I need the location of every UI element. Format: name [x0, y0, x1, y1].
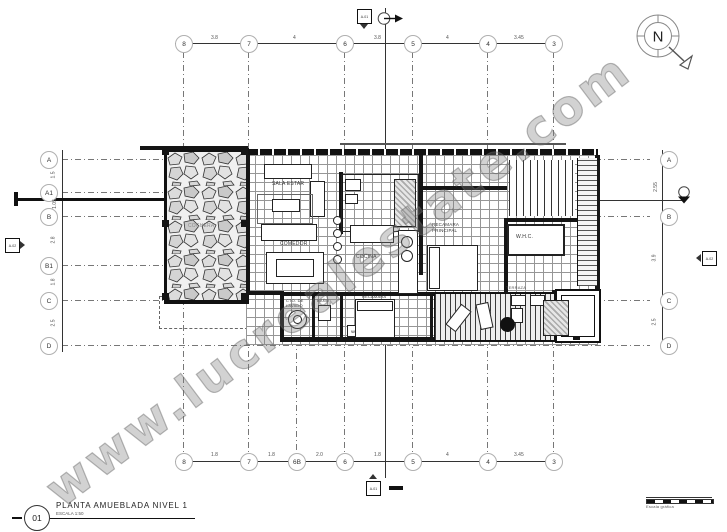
dimension-line-right [662, 150, 663, 352]
section-arrow-up-icon [369, 474, 377, 479]
room-label-sala: SALA ESTAR [272, 181, 304, 187]
cooktop-burner [401, 236, 413, 248]
grid-bubble-bottom-6: 6 [336, 453, 354, 471]
section-direction-arrow-icon [377, 10, 404, 27]
grid-line-row-d [62, 345, 650, 346]
grid-bubble-bottom-5: 5 [404, 453, 422, 471]
room-label-bano: BAÑO [317, 298, 329, 303]
staircase [509, 160, 575, 216]
room-label-comedor: COMEDOR [280, 241, 308, 247]
dim-bottom-2: 1.8 [268, 452, 275, 458]
wall-divider-1 [312, 296, 315, 337]
pool-step [573, 336, 580, 340]
dim-bottom-3: 2.0 [316, 452, 323, 458]
title-tick [12, 517, 22, 519]
wall-divider-3 [430, 296, 433, 337]
north-arrow-icon: N [626, 8, 698, 74]
grid-bubble-bottom-3: 3 [545, 453, 563, 471]
roof-overhang-line [340, 143, 566, 145]
dim-left-4: 1.8 [50, 279, 56, 286]
column [162, 148, 169, 155]
bath-sink-1 [511, 295, 526, 306]
dim-top-5: 3.45 [514, 35, 524, 41]
grid-bubble-top-7: 7 [240, 35, 258, 53]
dim-left-5: 2.5 [50, 320, 56, 327]
grid-bubble-bottom-7: 7 [240, 453, 258, 471]
stool [333, 255, 342, 264]
grid-bubble-bottom-8: 8 [175, 453, 193, 471]
washer-drum [293, 315, 302, 324]
graphic-scale-label: Escala gráfica [646, 504, 674, 509]
dim-top-2: 4 [293, 35, 296, 41]
grid-bubble-left-c: C [40, 292, 58, 310]
drawing-title: PLANTA AMUEBLADA NIVEL 1 [56, 501, 188, 510]
walk-in-closet [507, 224, 565, 256]
bed-pillow [429, 247, 440, 289]
stool [333, 229, 342, 238]
dim-bottom-5: 4 [446, 452, 449, 458]
drawing-number-bubble: 01 [24, 505, 50, 531]
room-label-recamara: RECAMARA [362, 294, 386, 299]
toilet [345, 179, 361, 191]
sofa-2 [261, 224, 317, 241]
title-underline [50, 518, 195, 520]
grid-bubble-left-a: A [40, 151, 58, 169]
grid-bubble-left-b: B [40, 208, 58, 226]
grid-bubble-bottom-4: 4 [479, 453, 497, 471]
section-line-bottom-bar [389, 486, 403, 490]
dim-top-3: 3.8 [374, 35, 381, 41]
section-marker-right: A-02 [702, 251, 717, 266]
east-shelving [577, 158, 597, 286]
graphic-scale-bar [646, 499, 714, 504]
roof-edge-line [140, 146, 248, 150]
grid-bubble-top-8: 8 [175, 35, 193, 53]
dimension-line-left [62, 150, 63, 352]
dimension-line-top [175, 43, 562, 44]
bed-guest-pillow [357, 301, 393, 311]
section-marker-bottom: A-01 [366, 481, 381, 496]
grid-bubble-right-c: C [660, 292, 678, 310]
section-arrow-right-icon [20, 241, 25, 249]
column [162, 220, 169, 227]
dining-table-top [276, 259, 314, 277]
section-marker-left: A-02 [5, 238, 20, 253]
grid-bubble-bottom-6b: 6B [288, 453, 306, 471]
grid-bubble-right-a: A [660, 151, 678, 169]
plant [500, 317, 515, 332]
wall-laundry-west [280, 294, 284, 342]
grid-bubble-top-6: 6 [336, 35, 354, 53]
wall-comedor-south [246, 291, 284, 295]
sofa [264, 164, 312, 179]
closet-shelf [394, 179, 416, 227]
grid-bubble-top-5: 5 [404, 35, 422, 53]
dim-right-1: 2.55 [653, 182, 659, 192]
wall-divider-2 [340, 296, 343, 337]
grid-bubble-right-b: B [660, 208, 678, 226]
kitchen-island [350, 225, 394, 243]
graphic-scale-line [646, 497, 712, 498]
grid-bubble-left-d: D [40, 337, 58, 355]
room-label-cocina: COCINA [356, 254, 377, 260]
room-label-lavado-2: LAVADO [286, 303, 303, 308]
wall-bedroom-north [423, 186, 507, 190]
section-marker-top: A-01 [357, 9, 372, 24]
grid-line-col-6b [296, 340, 297, 452]
room-label-recamara-principal-2: PRINCIPAL [432, 228, 457, 233]
dim-bottom-1: 1.8 [211, 452, 218, 458]
dim-bottom-6: 3.45 [514, 452, 524, 458]
column [241, 293, 248, 300]
grid-bubble-right-d: D [660, 337, 678, 355]
room-label-whc: W.H.C. [516, 234, 533, 240]
wall-bedroom-west [419, 155, 423, 275]
grid-bubble-top-3: 3 [545, 35, 563, 53]
room-label-terraza: TERRAZA [506, 285, 526, 290]
dim-left-1: 1.5 [50, 172, 56, 179]
dimension-line-bottom [175, 461, 562, 462]
dim-right-2: 3.9 [651, 255, 657, 262]
toilet-2 [318, 305, 331, 321]
dim-top-4: 4 [446, 35, 449, 41]
dim-left-2: 1.05 [52, 199, 58, 209]
room-label-cochera: COCHERA [188, 223, 214, 229]
dim-right-3: 2.5 [651, 319, 657, 326]
drawing-scale: ESCALA 1:50 [56, 511, 84, 516]
room-label-recamara-principal-1: RECAMARA [432, 222, 459, 227]
dim-top-1: 3.8 [211, 35, 218, 41]
column [162, 293, 169, 300]
cooktop-burner [401, 250, 413, 262]
dim-left-3: 2.8 [50, 237, 56, 244]
sink [345, 194, 358, 204]
shower [543, 300, 569, 336]
section-head-down-icon [674, 186, 694, 205]
section-arrow-left-icon [696, 254, 701, 262]
north-letter: N [653, 29, 664, 46]
column [241, 220, 248, 227]
stool [333, 242, 342, 251]
section-line-left-nub [14, 192, 18, 206]
grid-bubble-left-b1: B1 [40, 257, 58, 275]
coffee-table [272, 199, 300, 212]
grid-bubble-top-4: 4 [479, 35, 497, 53]
stool [333, 216, 342, 225]
column [241, 148, 248, 155]
floor-plan-sheet: A-01 A-01 A-02 A-02 8 7 6 5 4 3 8 7 6B 6… [0, 0, 727, 532]
section-arrow-down-icon [360, 24, 368, 29]
dim-bottom-4: 1.8 [374, 452, 381, 458]
